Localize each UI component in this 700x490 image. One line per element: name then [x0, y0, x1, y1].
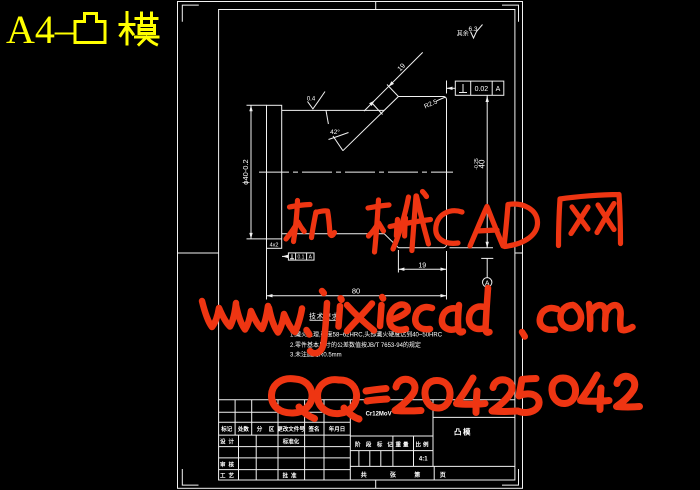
- svg-text:批准: 批准: [282, 472, 299, 480]
- svg-text:0.02: 0.02: [475, 86, 489, 93]
- svg-text:共: 共: [361, 471, 367, 479]
- svg-text:标: 标: [376, 441, 383, 449]
- svg-text:4x2: 4x2: [270, 243, 279, 249]
- svg-text:区: 区: [269, 425, 275, 433]
- svg-text:工艺: 工艺: [220, 472, 237, 480]
- svg-text:0.4: 0.4: [307, 97, 316, 103]
- svg-text:其余: 其余: [457, 30, 469, 38]
- svg-text:年月日: 年月日: [329, 425, 346, 433]
- svg-text:6.3: 6.3: [468, 26, 477, 33]
- svg-text:4:1: 4:1: [419, 456, 428, 462]
- svg-text:凸模: 凸模: [454, 427, 472, 437]
- svg-text:-0.25: -0.25: [474, 158, 480, 170]
- svg-text:第: 第: [413, 471, 420, 479]
- svg-text:0.1: 0.1: [298, 255, 305, 261]
- svg-text:19: 19: [418, 262, 426, 269]
- svg-text:段: 段: [366, 441, 372, 449]
- svg-text:设计: 设计: [220, 438, 237, 446]
- svg-text:A: A: [496, 86, 501, 93]
- svg-text:80: 80: [352, 287, 360, 296]
- svg-text:标准化: 标准化: [282, 438, 300, 446]
- svg-text:2.零件基本尺寸的公差数值按JB/T 7653-94的规定: 2.零件基本尺寸的公差数值按JB/T 7653-94的规定: [290, 341, 421, 349]
- svg-text:张: 张: [390, 471, 397, 479]
- svg-text:A4–: A4–: [6, 7, 76, 52]
- svg-text:审核: 审核: [220, 460, 237, 468]
- svg-text:ϕ40-0.2: ϕ40-0.2: [241, 159, 250, 184]
- svg-text:更改文件号: 更改文件号: [277, 425, 305, 433]
- svg-text:标记: 标记: [220, 425, 233, 433]
- svg-text:记: 记: [387, 441, 393, 449]
- svg-text:处数: 处数: [237, 425, 250, 433]
- svg-text:Cr12MoV: Cr12MoV: [366, 411, 392, 417]
- svg-text:页: 页: [440, 471, 446, 479]
- svg-text:重量: 重量: [395, 441, 410, 449]
- svg-text:分: 分: [257, 425, 263, 433]
- svg-text:42°: 42°: [330, 128, 340, 136]
- svg-text:阶: 阶: [355, 441, 361, 449]
- svg-text:比例: 比例: [415, 441, 430, 449]
- svg-text:1.瀻火处理,硬度58~62HRC,头部瀻火硬度达到40~5: 1.瀻火处理,硬度58~62HRC,头部瀻火硬度达到40~50HRC: [290, 331, 443, 339]
- svg-text:签名: 签名: [307, 425, 319, 433]
